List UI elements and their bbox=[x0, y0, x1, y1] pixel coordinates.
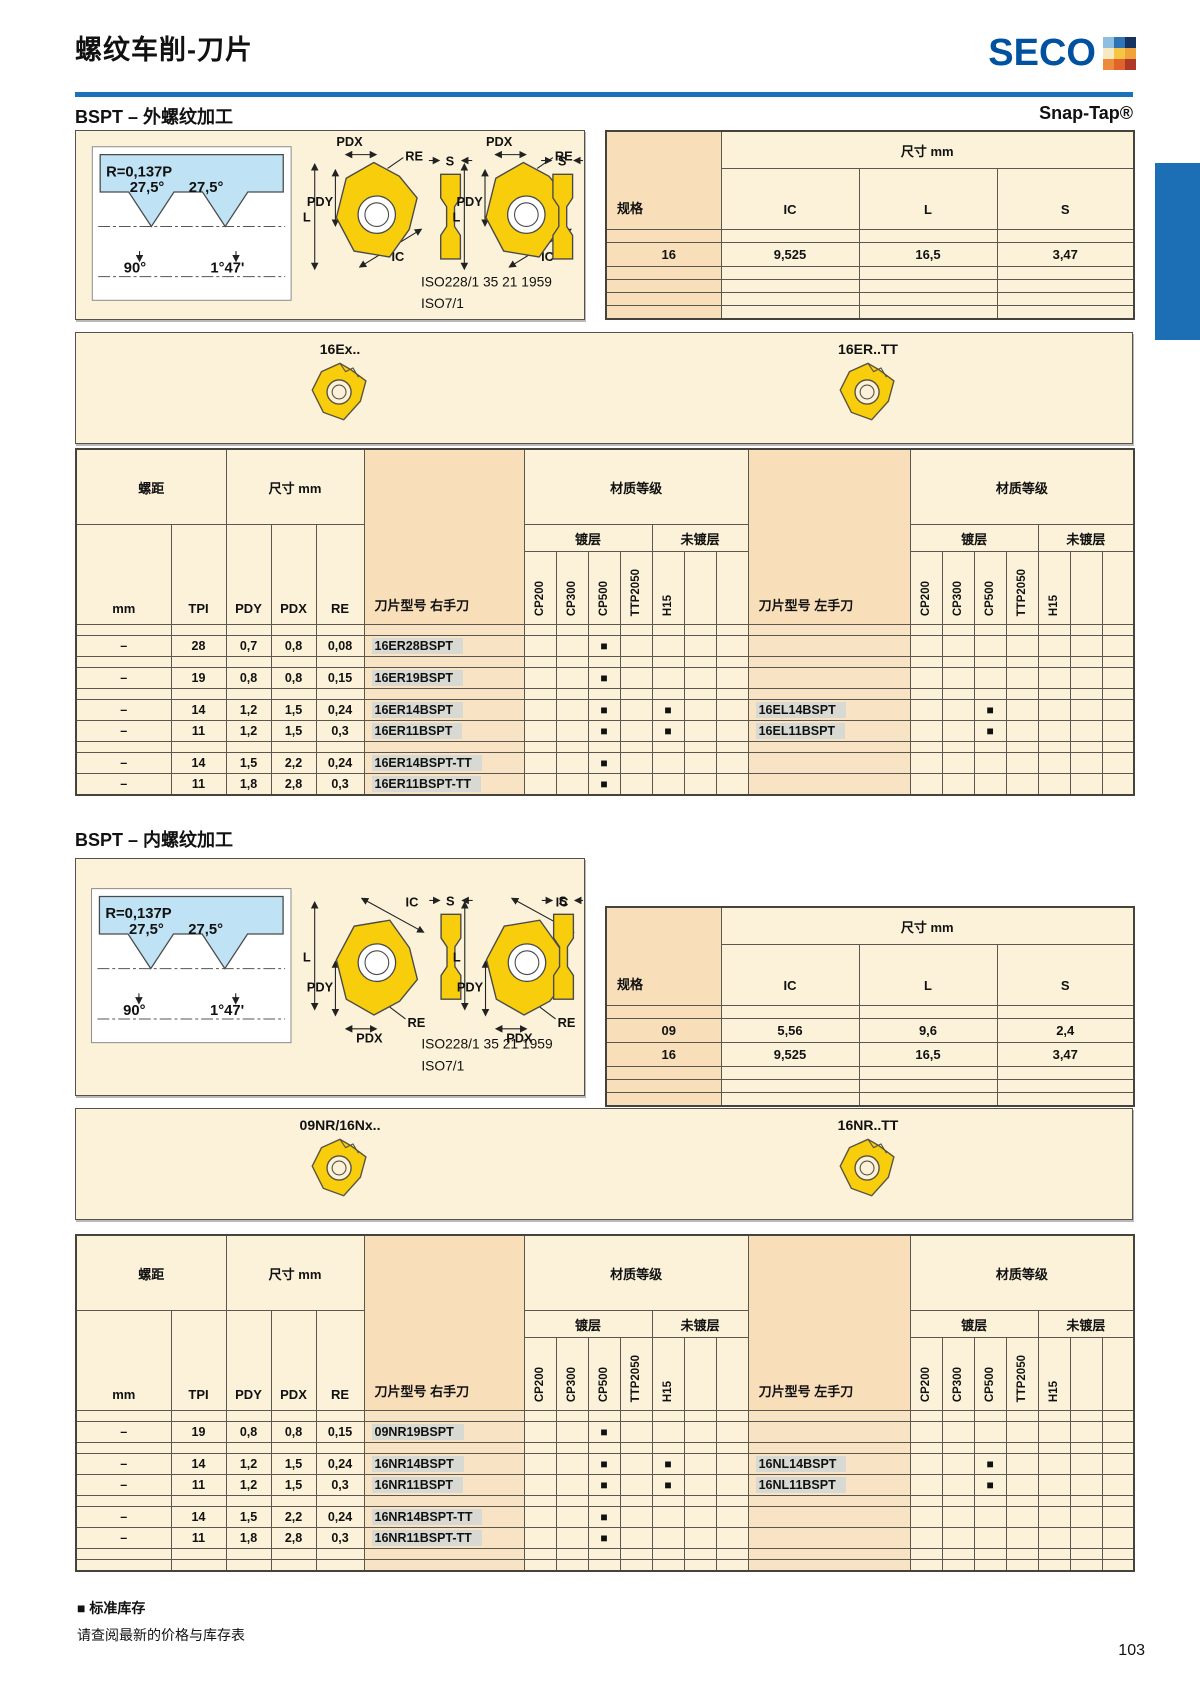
stock-mark: ■ bbox=[588, 721, 620, 742]
spacer-row bbox=[606, 1093, 1134, 1107]
col-re: RE bbox=[316, 525, 364, 625]
spacer-row bbox=[76, 1549, 1134, 1560]
insert-designation: 16ER19BSPT bbox=[372, 670, 464, 686]
grade-h15: H15 bbox=[652, 552, 684, 625]
dim-pdy: PDY bbox=[307, 194, 334, 209]
value-cell: – bbox=[76, 636, 171, 657]
value-cell: 14 bbox=[171, 753, 226, 774]
grade-header: 材质等级 bbox=[910, 449, 1134, 525]
left-hand-designation-header: 刀片型号 左手刀 bbox=[748, 449, 910, 625]
uncoated-header: 未镀层 bbox=[652, 1311, 748, 1338]
insert-drawing-front-1: L PDY IC RE PDX bbox=[303, 894, 426, 1045]
svg-text:L: L bbox=[453, 950, 461, 965]
value-cell: 1,8 bbox=[226, 1528, 271, 1549]
thread-diagram-external: R=0,137P 27,5° 27,5° 90° 1°47' L PDY PDX… bbox=[76, 131, 583, 318]
value-cell: 1,2 bbox=[226, 1454, 271, 1475]
value-cell: 28 bbox=[171, 636, 226, 657]
insert-image bbox=[303, 358, 377, 426]
grade-header: 材质等级 bbox=[524, 1235, 748, 1311]
value-cell: 11 bbox=[171, 721, 226, 742]
value-cell: 0,15 bbox=[316, 668, 364, 689]
col-ic: IC bbox=[721, 945, 859, 1006]
stock-mark: ■ bbox=[588, 1454, 620, 1475]
stock-mark: ■ bbox=[588, 1422, 620, 1443]
col-pdy: PDY bbox=[226, 525, 271, 625]
table-row: –141,52,20,2416NR14BSPT-TT■ bbox=[76, 1507, 1134, 1528]
value-cell: 0,24 bbox=[316, 700, 364, 721]
stock-mark: ■ bbox=[588, 700, 620, 721]
stock-legend-text: 标准库存 bbox=[89, 1600, 145, 1616]
strip-left: 09NR/16Nx.. bbox=[76, 1109, 604, 1219]
insert-designation: 16NR14BSPT bbox=[372, 1456, 464, 1472]
insert-designation: 16NR14BSPT-TT bbox=[372, 1509, 483, 1525]
svg-text:RE: RE bbox=[558, 1015, 576, 1030]
svg-text:PDY: PDY bbox=[457, 979, 484, 994]
value-cell: 09 bbox=[606, 1019, 721, 1043]
col-ic: IC bbox=[721, 169, 859, 230]
section-header-internal: BSPT – 内螺纹加工 bbox=[75, 826, 1133, 852]
value-cell: 19 bbox=[171, 1422, 226, 1443]
stock-mark: ■ bbox=[652, 700, 684, 721]
value-cell: 2,4 bbox=[997, 1019, 1134, 1043]
diagram-box-external: R=0,137P 27,5° 27,5° 90° 1°47' L PDY PDX… bbox=[75, 130, 585, 320]
insert-family-label: 16Ex.. bbox=[320, 341, 360, 357]
strip-right: 16NR..TT bbox=[604, 1109, 1132, 1219]
insert-image bbox=[831, 1134, 905, 1202]
seco-logo: SECO bbox=[988, 36, 1136, 70]
stock-mark: ■ bbox=[588, 753, 620, 774]
grade-cp200: CP200 bbox=[524, 1338, 556, 1411]
insert-drawing-front-1: L PDY PDX RE IC bbox=[303, 134, 424, 269]
col-l: L bbox=[859, 945, 997, 1006]
spacer-row bbox=[606, 1006, 1134, 1019]
value-cell: 0,3 bbox=[316, 1475, 364, 1496]
stock-mark: ■ bbox=[588, 1507, 620, 1528]
dim-pdx: PDX bbox=[336, 134, 363, 149]
spacer-row bbox=[606, 293, 1134, 306]
value-cell: 19 bbox=[171, 668, 226, 689]
coated-header: 镀层 bbox=[524, 1311, 652, 1338]
dim-pdx: PDX bbox=[356, 1031, 383, 1046]
grade-cp300: CP300 bbox=[556, 552, 588, 625]
value-cell: 0,3 bbox=[316, 721, 364, 742]
table-row: –111,82,80,316NR11BSPT-TT■ bbox=[76, 1528, 1134, 1549]
strip-left: 16Ex.. bbox=[76, 333, 604, 443]
value-cell: 0,3 bbox=[316, 774, 364, 796]
value-cell: 14 bbox=[171, 1454, 226, 1475]
grade-cp200: CP200 bbox=[910, 552, 942, 625]
flank-angle-right: 27,5° bbox=[189, 180, 224, 196]
grade-cp200: CP200 bbox=[910, 1338, 942, 1411]
flank-angle-left: 27,5° bbox=[129, 922, 164, 938]
grade-h15: H15 bbox=[1038, 1338, 1070, 1411]
value-cell: 11 bbox=[171, 774, 226, 796]
dimension-table-internal: 规格 尺寸 mm IC L S 095,569,62,4169,52516,53… bbox=[605, 906, 1135, 1107]
table-row: –111,82,80,316ER11BSPT-TT■ bbox=[76, 774, 1134, 796]
value-cell: – bbox=[76, 668, 171, 689]
stock-mark: ■ bbox=[974, 700, 1006, 721]
value-cell: 9,525 bbox=[721, 243, 859, 267]
value-cell: 2,8 bbox=[271, 1528, 316, 1549]
stock-mark: ■ bbox=[588, 636, 620, 657]
table-row: –111,21,50,316NR11BSPT■■16NL11BSPT■ bbox=[76, 1475, 1134, 1496]
value-cell: 0,3 bbox=[316, 1528, 364, 1549]
value-cell: 11 bbox=[171, 1475, 226, 1496]
insert-photo-strip-internal: 09NR/16Nx.. 16NR..TT bbox=[75, 1108, 1133, 1220]
insert-image bbox=[831, 358, 905, 426]
value-cell: 0,7 bbox=[226, 636, 271, 657]
insert-designation: 16NL11BSPT bbox=[756, 1477, 846, 1493]
grade-ttp2050: TTP2050 bbox=[1006, 552, 1038, 625]
table-row: –111,21,50,316ER11BSPT■■16EL11BSPT■ bbox=[76, 721, 1134, 742]
value-cell: 14 bbox=[171, 1507, 226, 1528]
dim-s: S bbox=[446, 893, 455, 908]
svg-text:PDY: PDY bbox=[456, 194, 483, 209]
grade-cp500: CP500 bbox=[974, 552, 1006, 625]
grade-header: 材质等级 bbox=[524, 449, 748, 525]
value-cell: 0,24 bbox=[316, 1454, 364, 1475]
grade-cp500: CP500 bbox=[974, 1338, 1006, 1411]
right-hand-designation-header: 刀片型号 右手刀 bbox=[364, 449, 524, 625]
iso-standard-line1: ISO228/1 35 21 1959 bbox=[421, 1036, 553, 1052]
header-row-groups: 螺距 尺寸 mm 刀片型号 右手刀 材质等级 刀片型号 左手刀 材质等级 bbox=[76, 1235, 1134, 1311]
value-cell: 0,8 bbox=[271, 668, 316, 689]
value-cell: 2,2 bbox=[271, 1507, 316, 1528]
table-row: –141,52,20,2416ER14BSPT-TT■ bbox=[76, 753, 1134, 774]
value-cell: 1,5 bbox=[271, 1475, 316, 1496]
value-cell: 2,2 bbox=[271, 753, 316, 774]
header-row-subgroups: mm TPI PDY PDX RE 镀层 未镀层 镀层 未镀层 bbox=[76, 1311, 1134, 1338]
grade-cp200: CP200 bbox=[524, 552, 556, 625]
grade-cp300: CP300 bbox=[556, 1338, 588, 1411]
spacer-row bbox=[76, 1411, 1134, 1422]
section-header-external: BSPT – 外螺纹加工 Snap-Tap® bbox=[75, 103, 1133, 129]
value-cell: 0,8 bbox=[226, 668, 271, 689]
spec-column-header: 规格 bbox=[606, 907, 721, 1006]
value-cell: 1,5 bbox=[271, 721, 316, 742]
value-cell: 16 bbox=[606, 243, 721, 267]
insert-family-label: 16NR..TT bbox=[838, 1117, 899, 1133]
spacer-row bbox=[606, 230, 1134, 243]
insert-family-label: 09NR/16Nx.. bbox=[300, 1117, 381, 1133]
price-note: 请查阅最新的价格与库存表 bbox=[77, 1625, 245, 1645]
iso-standard-line2: ISO7/1 bbox=[421, 1057, 464, 1073]
coated-header: 镀层 bbox=[910, 1311, 1038, 1338]
insert-family-label: 16ER..TT bbox=[838, 341, 898, 357]
iso-standard-line2: ISO7/1 bbox=[421, 296, 464, 311]
value-cell: 0,24 bbox=[316, 753, 364, 774]
value-cell: – bbox=[76, 700, 171, 721]
value-cell: 1,5 bbox=[226, 753, 271, 774]
dim-ic: IC bbox=[406, 894, 419, 909]
table-row: –141,21,50,2416ER14BSPT■■16EL14BSPT■ bbox=[76, 700, 1134, 721]
insert-designation: 16NR11BSPT bbox=[372, 1477, 464, 1493]
value-cell: 1,5 bbox=[271, 1454, 316, 1475]
col-tpi: TPI bbox=[171, 1311, 226, 1411]
stock-mark: ■ bbox=[588, 668, 620, 689]
insert-image bbox=[303, 1134, 377, 1202]
value-cell: 14 bbox=[171, 700, 226, 721]
dim-re: RE bbox=[408, 1015, 426, 1030]
stock-mark: ■ bbox=[974, 721, 1006, 742]
right-hand-designation-header: 刀片型号 右手刀 bbox=[364, 1235, 524, 1411]
table-row: 169,52516,53,47 bbox=[606, 243, 1134, 267]
svg-text:S: S bbox=[559, 893, 568, 908]
grade-ttp2050: TTP2050 bbox=[620, 552, 652, 625]
grade-h15: H15 bbox=[1038, 552, 1070, 625]
table-row: 095,569,62,4 bbox=[606, 1019, 1134, 1043]
value-cell: 1,5 bbox=[271, 700, 316, 721]
spacer-row bbox=[606, 280, 1134, 293]
value-cell: 2,8 bbox=[271, 774, 316, 796]
value-cell: 0,24 bbox=[316, 1507, 364, 1528]
spacer-row bbox=[606, 306, 1134, 320]
grade-cp300: CP300 bbox=[942, 1338, 974, 1411]
dim-pdy: PDY bbox=[307, 979, 334, 994]
stock-mark: ■ bbox=[588, 1475, 620, 1496]
value-cell: 1,2 bbox=[226, 721, 271, 742]
pitch-header: 螺距 bbox=[76, 449, 226, 525]
value-cell: 1,2 bbox=[226, 1475, 271, 1496]
insert-designation: 16NL14BSPT bbox=[756, 1456, 847, 1472]
grade-ttp2050: TTP2050 bbox=[1006, 1338, 1038, 1411]
spacer-row bbox=[76, 689, 1134, 700]
spacer-row bbox=[76, 657, 1134, 668]
coated-header: 镀层 bbox=[910, 525, 1038, 552]
value-cell: 5,56 bbox=[721, 1019, 859, 1043]
catalog-page: 螺纹车削-刀片 SECO BSPT – 外螺纹加工 Snap-Tap® R=0,… bbox=[0, 0, 1200, 1697]
col-l: L bbox=[859, 169, 997, 230]
grade-h15: H15 bbox=[652, 1338, 684, 1411]
uncoated-header: 未镀层 bbox=[1038, 525, 1134, 552]
flank-angle-right: 27,5° bbox=[188, 922, 223, 938]
stock-mark: ■ bbox=[588, 774, 620, 796]
strip-right: 16ER..TT bbox=[604, 333, 1132, 443]
spacer-row bbox=[76, 1560, 1134, 1572]
dims-mm-header: 尺寸 mm bbox=[721, 131, 1134, 169]
spacer-row bbox=[606, 1080, 1134, 1093]
value-cell: – bbox=[76, 1422, 171, 1443]
grade-cp500: CP500 bbox=[588, 1338, 620, 1411]
iso-standard-line1: ISO228/1 35 21 1959 bbox=[421, 275, 552, 290]
value-cell: 1,2 bbox=[226, 700, 271, 721]
pitch-header: 螺距 bbox=[76, 1235, 226, 1311]
value-cell: 9,525 bbox=[721, 1043, 859, 1067]
value-cell: – bbox=[76, 753, 171, 774]
dims-header: 尺寸 mm bbox=[226, 449, 364, 525]
grade-ttp2050: TTP2050 bbox=[620, 1338, 652, 1411]
value-cell: 9,6 bbox=[859, 1019, 997, 1043]
page-title: 螺纹车削-刀片 bbox=[75, 28, 253, 67]
section-title: BSPT – 内螺纹加工 bbox=[75, 826, 233, 852]
page-edge-tab bbox=[1155, 163, 1200, 340]
dim-re: RE bbox=[405, 149, 423, 164]
col-pdx: PDX bbox=[271, 1311, 316, 1411]
seco-wordmark: SECO bbox=[988, 36, 1096, 70]
spacer-row bbox=[76, 742, 1134, 753]
col-s: S bbox=[997, 945, 1134, 1006]
dims-mm-header: 尺寸 mm bbox=[721, 907, 1134, 945]
stock-mark: ■ bbox=[652, 1475, 684, 1496]
svg-text:PDX: PDX bbox=[486, 134, 513, 149]
col-pdx: PDX bbox=[271, 525, 316, 625]
dims-header: 尺寸 mm bbox=[226, 1235, 364, 1311]
spacer-row bbox=[606, 1067, 1134, 1080]
value-cell: 0,08 bbox=[316, 636, 364, 657]
spec-column-header: 规格 bbox=[606, 131, 721, 230]
thread-diagram-internal: R=0,137P 27,5° 27,5° 90° 1°47' L PDY IC … bbox=[76, 859, 583, 1094]
dim-l: L bbox=[303, 210, 311, 225]
value-cell: – bbox=[76, 1454, 171, 1475]
grade-cp300: CP300 bbox=[942, 552, 974, 625]
insert-designation: 16ER11BSPT bbox=[372, 723, 463, 739]
insert-designation: 16ER11BSPT-TT bbox=[372, 776, 482, 792]
uncoated-header: 未镀层 bbox=[652, 525, 748, 552]
col-mm: mm bbox=[76, 1311, 171, 1411]
spacer-row bbox=[76, 625, 1134, 636]
header-row-groups: 螺距 尺寸 mm 刀片型号 右手刀 材质等级 刀片型号 左手刀 材质等级 bbox=[76, 449, 1134, 525]
radius-label: R=0,137P bbox=[106, 164, 172, 180]
value-cell: 16,5 bbox=[859, 1043, 997, 1067]
header-row-subgroups: mm TPI PDY PDX RE 镀层 未镀层 镀层 未镀层 bbox=[76, 525, 1134, 552]
col-s: S bbox=[997, 169, 1134, 230]
value-cell: 3,47 bbox=[997, 243, 1134, 267]
insert-designation: 16ER14BSPT bbox=[372, 702, 464, 718]
dim-l: L bbox=[303, 950, 311, 965]
section-title: BSPT – 外螺纹加工 bbox=[75, 103, 233, 129]
uncoated-header: 未镀层 bbox=[1038, 1311, 1134, 1338]
insert-designation: 16EL11BSPT bbox=[756, 723, 845, 739]
left-hand-designation-header: 刀片型号 左手刀 bbox=[748, 1235, 910, 1411]
insert-designation: 16EL14BSPT bbox=[756, 702, 846, 718]
insert-designation: 09NR19BSPT bbox=[372, 1424, 464, 1440]
col-pdy: PDY bbox=[226, 1311, 271, 1411]
table-row: –280,70,80,0816ER28BSPT■ bbox=[76, 636, 1134, 657]
col-tpi: TPI bbox=[171, 525, 226, 625]
insert-designation: 16NR11BSPT-TT bbox=[372, 1530, 482, 1546]
col-re: RE bbox=[316, 1311, 364, 1411]
insert-designation: 16ER14BSPT-TT bbox=[372, 755, 482, 771]
value-cell: – bbox=[76, 721, 171, 742]
snap-tap-label: Snap-Tap® bbox=[1039, 103, 1133, 129]
flank-angle-left: 27,5° bbox=[130, 180, 165, 196]
angle-90: 90° bbox=[124, 261, 146, 277]
table-row: 169,52516,53,47 bbox=[606, 1043, 1134, 1067]
value-cell: 1,5 bbox=[226, 1507, 271, 1528]
value-cell: 0,8 bbox=[271, 1422, 316, 1443]
value-cell: 0,15 bbox=[316, 1422, 364, 1443]
angle-90: 90° bbox=[123, 1003, 145, 1019]
value-cell: 16 bbox=[606, 1043, 721, 1067]
page-number: 103 bbox=[1118, 1642, 1145, 1660]
dimension-table-external: 规格 尺寸 mm IC L S 169,52516,53,47 bbox=[605, 130, 1135, 320]
value-cell: – bbox=[76, 1475, 171, 1496]
diagram-box-internal: R=0,137P 27,5° 27,5° 90° 1°47' L PDY IC … bbox=[75, 858, 585, 1096]
stock-mark: ■ bbox=[974, 1454, 1006, 1475]
value-cell: – bbox=[76, 1507, 171, 1528]
value-cell: 1,8 bbox=[226, 774, 271, 796]
stock-mark: ■ bbox=[652, 721, 684, 742]
value-cell: 16,5 bbox=[859, 243, 997, 267]
svg-text:L: L bbox=[453, 210, 461, 225]
radius-label: R=0,137P bbox=[105, 906, 171, 922]
insert-photo-strip-external: 16Ex.. 16ER..TT bbox=[75, 332, 1133, 444]
spacer-row bbox=[76, 1496, 1134, 1507]
spacer-row bbox=[76, 1443, 1134, 1454]
insert-selection-table-internal: 螺距 尺寸 mm 刀片型号 右手刀 材质等级 刀片型号 左手刀 材质等级 mm … bbox=[75, 1234, 1135, 1572]
table-row: –141,21,50,2416NR14BSPT■■16NL14BSPT■ bbox=[76, 1454, 1134, 1475]
value-cell: – bbox=[76, 1528, 171, 1549]
taper-angle: 1°47' bbox=[210, 1003, 244, 1019]
stock-mark: ■ bbox=[588, 1528, 620, 1549]
svg-text:S: S bbox=[558, 153, 567, 168]
grade-header: 材质等级 bbox=[910, 1235, 1134, 1311]
value-cell: 3,47 bbox=[997, 1043, 1134, 1067]
value-cell: 0,8 bbox=[226, 1422, 271, 1443]
table-row: –190,80,80,1516ER19BSPT■ bbox=[76, 668, 1134, 689]
insert-selection-table-external: 螺距 尺寸 mm 刀片型号 右手刀 材质等级 刀片型号 左手刀 材质等级 mm … bbox=[75, 448, 1135, 796]
header-divider bbox=[75, 92, 1133, 97]
insert-designation: 16ER28BSPT bbox=[372, 638, 464, 654]
value-cell: 0,8 bbox=[271, 636, 316, 657]
col-mm: mm bbox=[76, 525, 171, 625]
value-cell: – bbox=[76, 774, 171, 796]
value-cell: 11 bbox=[171, 1528, 226, 1549]
stock-mark: ■ bbox=[974, 1475, 1006, 1496]
stock-legend-mark: ■ bbox=[77, 1600, 85, 1616]
taper-angle: 1°47' bbox=[210, 261, 244, 277]
table-row: –190,80,80,1509NR19BSPT■ bbox=[76, 1422, 1134, 1443]
stock-mark: ■ bbox=[652, 1454, 684, 1475]
grade-cp500: CP500 bbox=[588, 552, 620, 625]
footnote: ■ 标准库存 请查阅最新的价格与库存表 bbox=[77, 1598, 245, 1645]
dim-s: S bbox=[446, 153, 455, 168]
seco-mark bbox=[1103, 37, 1136, 70]
coated-header: 镀层 bbox=[524, 525, 652, 552]
spacer-row bbox=[606, 267, 1134, 280]
